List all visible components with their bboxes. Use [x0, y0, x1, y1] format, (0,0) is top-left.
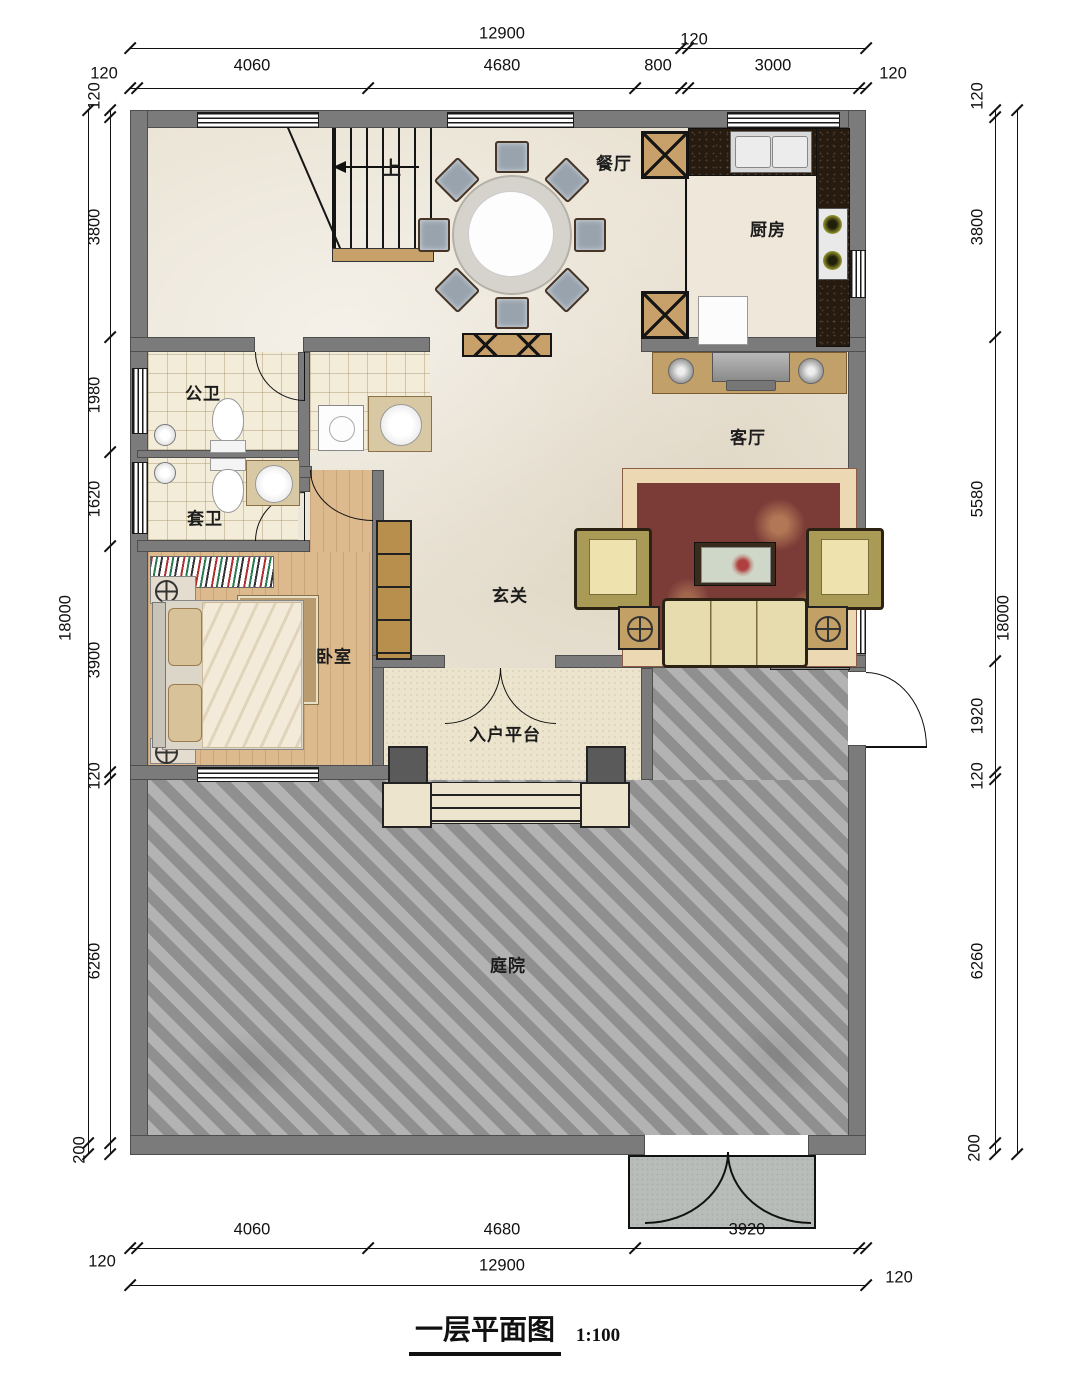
platform-column — [586, 746, 626, 786]
floor-courtyard-notch — [653, 668, 848, 780]
drawing-scale: 1:100 — [576, 1325, 620, 1347]
flue-shaft-top — [641, 131, 689, 179]
dim-top-seg4: 120 — [680, 31, 708, 50]
dining-chair — [495, 297, 529, 329]
burner — [823, 215, 842, 234]
dimension-line — [1017, 110, 1018, 1154]
label-kitchen: 厨房 — [750, 216, 786, 241]
dim-top-seg1: 4060 — [234, 57, 271, 76]
step-side-left — [382, 782, 432, 828]
wall-bath-top-left — [130, 337, 255, 352]
window-bedroom-bottom — [197, 767, 319, 782]
dimension-line — [88, 110, 89, 1154]
dimension-line — [130, 88, 866, 89]
landscape-sketch — [730, 1010, 830, 1100]
toilet-public — [210, 398, 244, 452]
vanity-basin — [255, 465, 293, 503]
washing-machine — [318, 405, 364, 451]
refrigerator — [698, 296, 748, 345]
dim-top-seg3: 800 — [644, 57, 672, 76]
dim-right-seg6: 200 — [966, 1134, 985, 1162]
step-side-right — [580, 782, 630, 828]
speaker — [668, 358, 694, 384]
drawing-title: 一层平面图 — [409, 1308, 561, 1356]
wall-bottom-left — [130, 1135, 645, 1155]
label-courtyard: 庭院 — [490, 952, 526, 977]
window-kitchen-right — [850, 250, 866, 298]
window-kitchen-top — [727, 112, 840, 128]
wall-platform-right — [641, 668, 653, 780]
dim-bottom-overall: 12900 — [479, 1257, 525, 1276]
flue-shaft-bottom — [641, 291, 689, 339]
label-living: 客厅 — [730, 424, 766, 449]
vanity-public — [368, 396, 432, 452]
toilet-tank — [210, 440, 246, 453]
burner — [823, 251, 842, 270]
door-courtyard-side — [866, 672, 927, 748]
dim-bottom-seg4: 120 — [885, 1269, 913, 1288]
pillow — [168, 608, 202, 666]
dim-bottom-seg0: 120 — [88, 1253, 116, 1272]
dim-right-seg1: 3800 — [969, 209, 988, 246]
dim-top-seg0: 120 — [90, 65, 118, 84]
dim-right-seg2: 5580 — [969, 481, 988, 518]
staircase: 上 — [287, 128, 432, 262]
dining-chair — [495, 141, 529, 173]
tv — [712, 352, 790, 382]
stair-up-label: 上 — [382, 154, 402, 181]
wall-bath-bottom — [137, 540, 310, 552]
label-foyer: 玄关 — [492, 582, 528, 607]
dining-table-top — [468, 191, 554, 277]
plant — [627, 616, 653, 642]
floor-plan-sheet: 上 — [0, 0, 1080, 1380]
dim-bottom-seg3: 3920 — [729, 1221, 766, 1240]
dim-bottom-seg2: 4680 — [484, 1221, 521, 1240]
armchair-cushion — [589, 539, 637, 595]
vanity-basin — [380, 404, 422, 446]
armchair-left — [574, 528, 652, 610]
coffee-table-top — [701, 547, 771, 583]
dim-left-seg0: 120 — [86, 82, 105, 110]
toilet-bowl — [212, 398, 244, 442]
armchair-right — [806, 528, 884, 610]
kitchen-opening-track — [685, 179, 687, 291]
dimension-line — [995, 110, 996, 1154]
dim-top-seg6: 120 — [879, 65, 907, 84]
dim-right-seg3: 1920 — [969, 698, 988, 735]
dim-top-overall: 12900 — [479, 25, 525, 44]
washer-door — [329, 416, 355, 442]
platform-column — [388, 746, 428, 786]
wall-bottom-right — [808, 1135, 866, 1155]
label-dining: 餐厅 — [596, 150, 632, 175]
dim-right-seg5: 6260 — [969, 943, 988, 980]
sofa — [662, 598, 808, 668]
dimension-line — [110, 110, 111, 1154]
dimension-line — [130, 1248, 866, 1249]
side-table-left — [618, 606, 660, 650]
entry-steps — [414, 782, 598, 824]
window-public-bath — [132, 368, 148, 434]
stove — [818, 208, 848, 280]
shower-head-public — [154, 424, 176, 446]
shower-head-ensuite — [154, 462, 176, 484]
sink-basin — [772, 136, 808, 168]
landscape-sketch — [180, 1030, 310, 1100]
label-entry-platform: 入户平台 — [469, 721, 541, 746]
coffee-table — [694, 542, 776, 586]
dim-top-seg2: 4680 — [484, 57, 521, 76]
dim-top-seg5: 3000 — [755, 57, 792, 76]
dining-chair — [418, 218, 450, 252]
dimension-line — [130, 48, 866, 49]
speaker — [798, 358, 824, 384]
label-public-bath: 公卫 — [185, 380, 221, 405]
foyer-cabinet — [376, 520, 412, 660]
kitchen-sink — [730, 131, 812, 173]
window-top-2 — [447, 112, 574, 128]
shoe-cabinet — [462, 333, 552, 357]
pillow — [168, 684, 202, 742]
plant — [815, 616, 841, 642]
armchair-cushion — [821, 539, 869, 595]
side-table-right — [806, 606, 848, 650]
dim-left-overall: 18000 — [57, 595, 76, 641]
wall-right-lower — [848, 745, 866, 1155]
vanity-ensuite — [246, 460, 300, 506]
bed — [152, 600, 302, 748]
window-top-1 — [197, 112, 319, 128]
wall-left — [130, 110, 148, 1155]
dimension-line — [130, 1285, 866, 1286]
stair-direction-arrowhead — [333, 161, 346, 173]
blanket — [202, 602, 302, 748]
dim-right-overall: 18000 — [995, 595, 1014, 641]
dim-bottom-seg1: 4060 — [234, 1221, 271, 1240]
dim-left-seg7: 200 — [71, 1136, 90, 1164]
label-ensuite-bath: 套卫 — [187, 505, 223, 530]
sink-basin — [735, 136, 771, 168]
dim-right-seg4: 120 — [969, 762, 988, 790]
dim-right-seg0: 120 — [969, 82, 988, 110]
tv-base — [726, 380, 776, 391]
wall-bath-top-right — [303, 337, 430, 352]
label-bedroom: 卧室 — [316, 643, 352, 668]
window-ensuite-bath — [132, 462, 148, 534]
headboard — [152, 602, 166, 748]
dining-chair — [574, 218, 606, 252]
